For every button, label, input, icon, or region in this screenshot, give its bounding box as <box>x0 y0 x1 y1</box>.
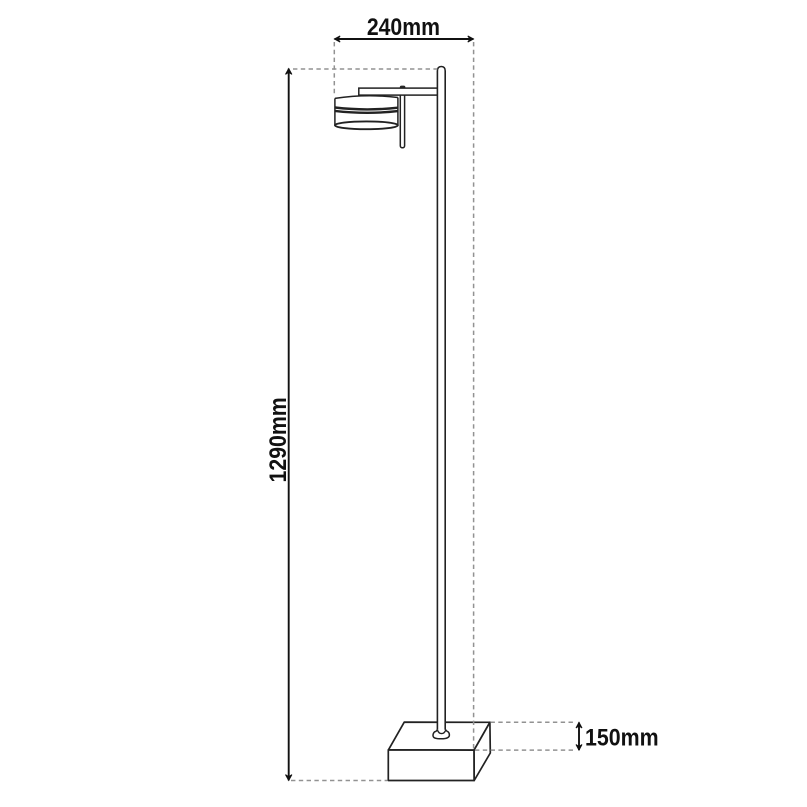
svg-text:150mm: 150mm <box>585 725 659 751</box>
svg-text:1290mm: 1290mm <box>266 397 292 482</box>
svg-text:240mm: 240mm <box>367 15 440 41</box>
